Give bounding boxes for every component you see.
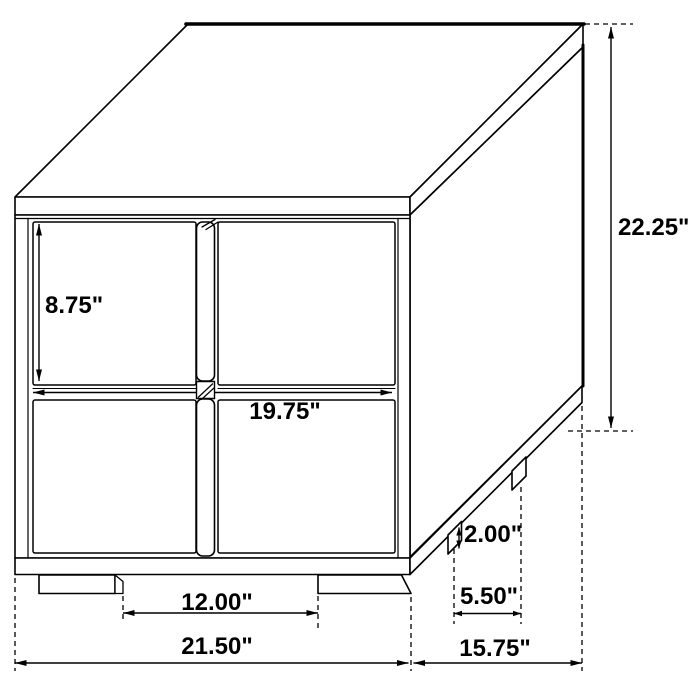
dim-overall-width-label: 21.50"	[181, 633, 252, 660]
drawer-top-right-panel	[218, 222, 395, 385]
front-leg-right	[318, 575, 411, 594]
front-leg-left-bevel	[115, 575, 123, 594]
dim-overall-depth-label: 15.75"	[459, 635, 530, 662]
front-leg-left	[39, 575, 115, 594]
dim-leg-height-label: 2.00"	[464, 521, 522, 548]
dim-front-leg-spacing-label: 12.00"	[181, 589, 252, 616]
dim-drawer-height-label: 8.75"	[45, 292, 103, 319]
dim-side-leg-spacing-label: 5.50"	[460, 583, 518, 610]
top-front-band	[15, 197, 410, 215]
handle-top	[197, 222, 215, 381]
handle-joint-overlay	[197, 382, 215, 399]
plinth-front	[15, 558, 410, 575]
diagram-canvas: 22.25" 8.75" 19.75" 2.00" 5.50" 12.00" 2…	[0, 0, 700, 700]
drawer-bottom-left-panel	[33, 400, 196, 553]
furniture-dimension-svg: 22.25" 8.75" 19.75" 2.00" 5.50" 12.00" 2…	[0, 0, 700, 700]
dim-overall-height-label: 22.25"	[618, 214, 689, 241]
dim-drawer-width-label: 19.75"	[249, 398, 320, 425]
handle-bottom	[197, 399, 215, 556]
